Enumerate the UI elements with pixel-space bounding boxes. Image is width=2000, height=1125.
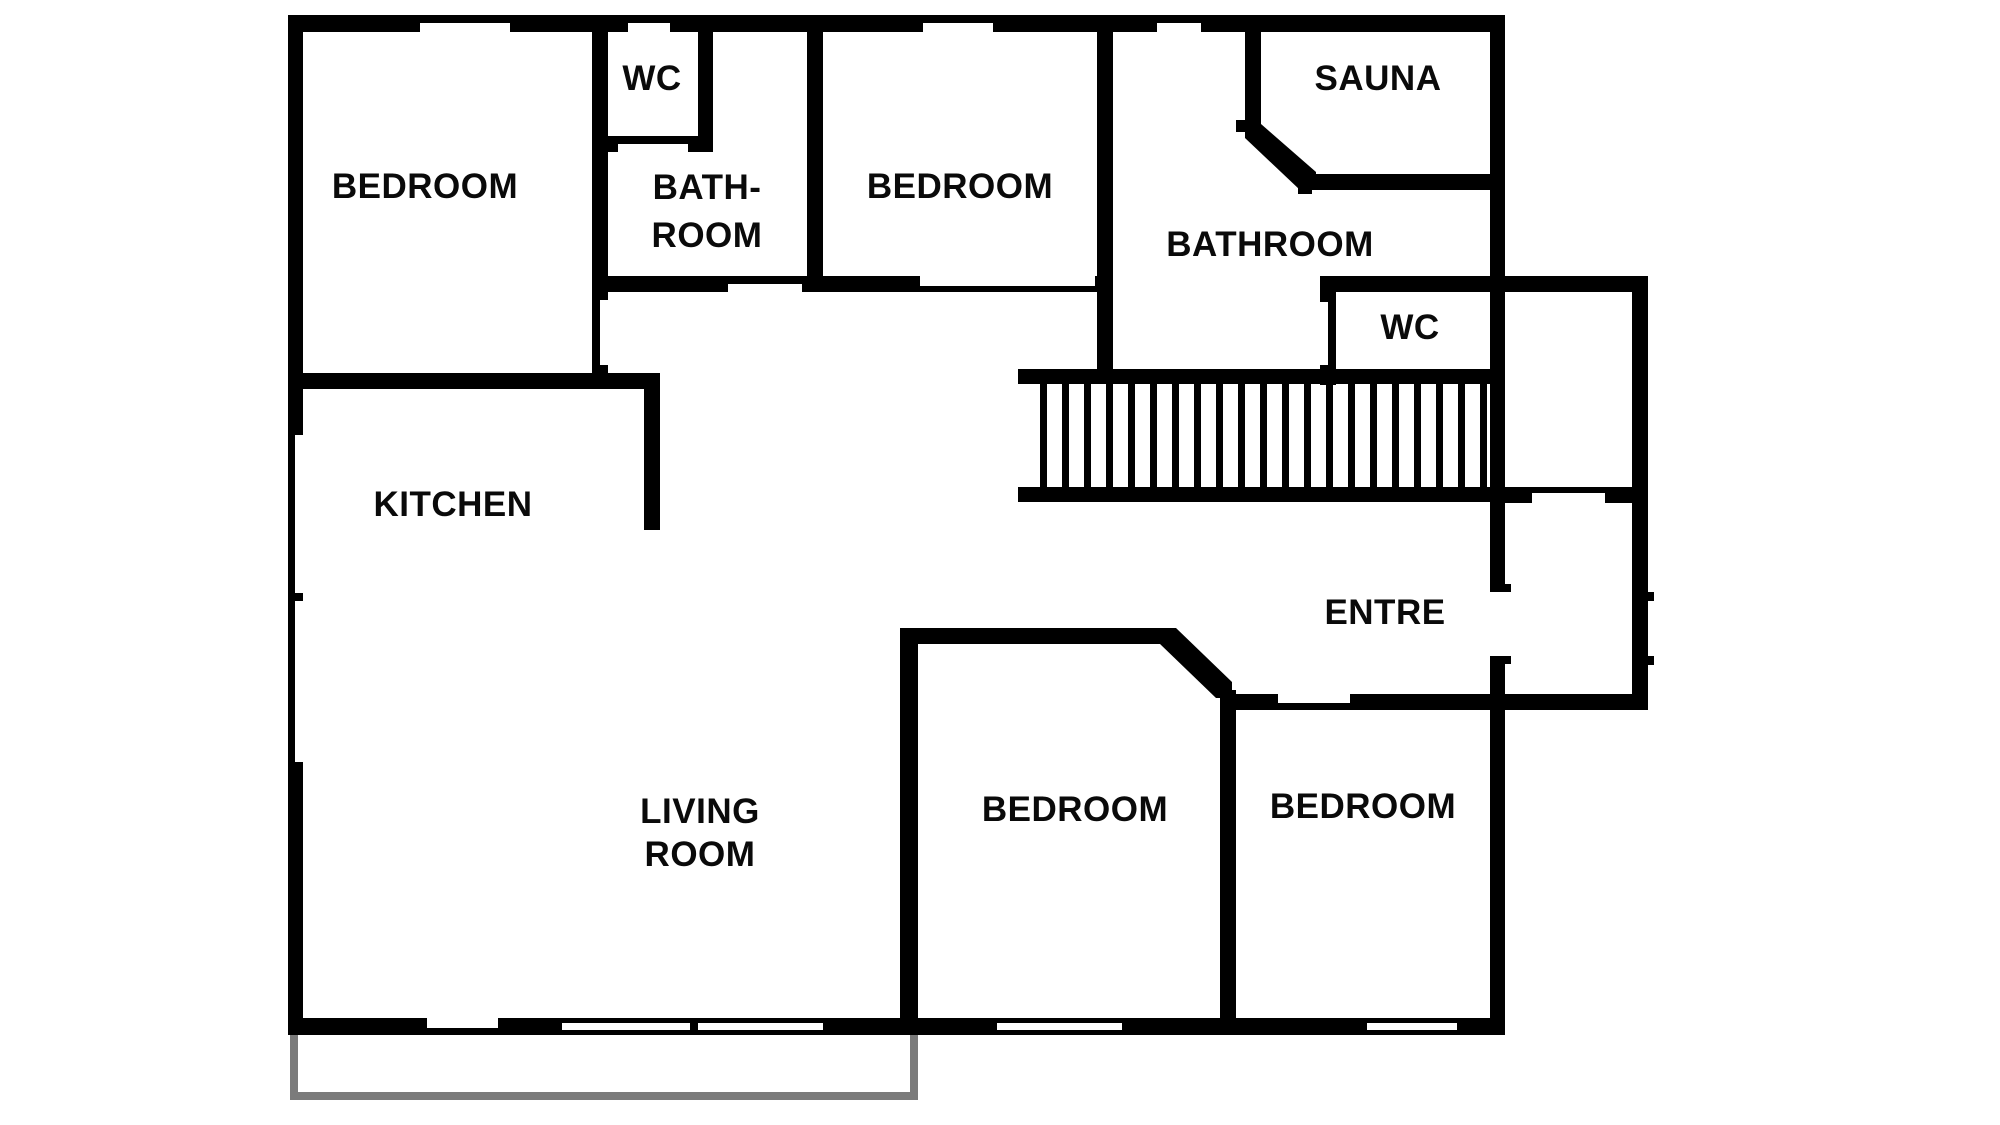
room-label-bathroom-top-line2: ROOM bbox=[652, 212, 763, 260]
floor-plan: BEDROOM WC BATH- ROOM BEDROOM SAUNA BATH… bbox=[0, 0, 2000, 1125]
room-label-kitchen: KITCHEN bbox=[373, 481, 532, 529]
room-label-bedroom-top-left: BEDROOM bbox=[332, 163, 518, 211]
room-label-bedroom-top-middle: BEDROOM bbox=[867, 163, 1053, 211]
room-label-living-room-line1: LIVING bbox=[640, 788, 760, 836]
entrance-annex bbox=[1505, 276, 1654, 710]
room-label-bathroom-top-line1: BATH- bbox=[653, 164, 762, 212]
room-label-entre: ENTRE bbox=[1324, 589, 1445, 637]
interior-walls-bottom bbox=[288, 373, 1648, 1035]
staircase bbox=[1018, 369, 1505, 502]
room-label-bathroom-right: BATHROOM bbox=[1166, 221, 1374, 269]
room-label-wc-right: WC bbox=[1380, 304, 1439, 352]
room-label-bedroom-bottom-right: BEDROOM bbox=[1270, 783, 1456, 831]
room-label-bedroom-bottom-middle: BEDROOM bbox=[982, 786, 1168, 834]
room-label-living-room-line2: ROOM bbox=[645, 831, 756, 879]
room-label-sauna: SAUNA bbox=[1315, 55, 1442, 103]
terrace-outline bbox=[290, 1035, 918, 1100]
room-label-wc-top: WC bbox=[622, 55, 681, 103]
